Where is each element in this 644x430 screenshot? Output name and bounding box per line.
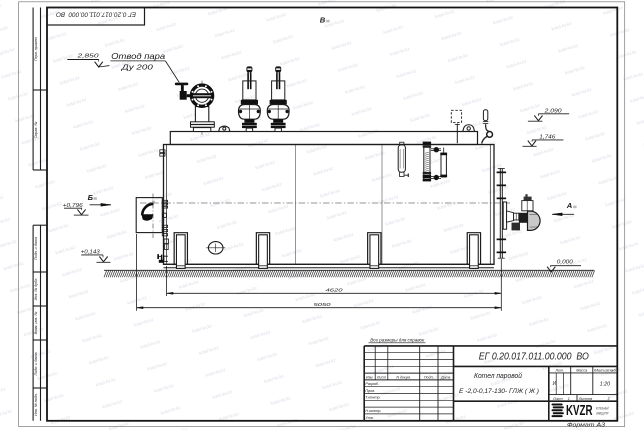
svg-text:КОТЕЛЬНЫЙ: КОТЕЛЬНЫЙ: [596, 406, 609, 410]
svg-text:Лит.: Лит.: [554, 369, 564, 373]
svg-text:Взам. инв. №: Взам. инв. №: [34, 312, 38, 335]
svg-text:В: В: [320, 16, 326, 25]
svg-text:Пров.: Пров.: [365, 389, 375, 393]
svg-text:Котел паровой: Котел паровой: [474, 371, 522, 380]
svg-text:ЗАВОД РЗР: ЗАВОД РЗР: [596, 411, 609, 415]
svg-text:Подп.: Подп.: [424, 375, 434, 379]
svg-text:ЕГ 0.20.017.011.00.000 ВО: ЕГ 0.20.017.011.00.000 ВО: [56, 11, 136, 18]
svg-text:Изм.: Изм.: [366, 375, 374, 379]
svg-text:Формат А3: Формат А3: [567, 422, 605, 428]
svg-text:ЕГ 0.20.017.011.00.000 ВО: ЕГ 0.20.017.011.00.000 ВО: [479, 351, 589, 362]
svg-text:1:20: 1:20: [600, 381, 611, 387]
svg-text:Листов: Листов: [578, 397, 593, 401]
svg-text:+0,143: +0,143: [81, 249, 100, 255]
svg-text:0,000: 0,000: [557, 259, 573, 265]
svg-text:N докум.: N докум.: [396, 375, 411, 379]
svg-text:KVZR: KVZR: [566, 403, 593, 419]
svg-text:Справ. №: Справ. №: [34, 122, 38, 139]
svg-text:5050: 5050: [314, 302, 331, 308]
svg-text:Перв. примен.: Перв. примен.: [34, 36, 38, 61]
svg-text:Инв. № дубл.: Инв. № дубл.: [34, 278, 38, 301]
svg-text:Лист: Лист: [376, 375, 386, 379]
svg-text:Инв. № подл.: Инв. № подл.: [34, 393, 38, 416]
svg-text:А: А: [566, 201, 572, 210]
svg-text:Дата: Дата: [440, 375, 450, 379]
svg-text:Т.контр.: Т.контр.: [365, 396, 380, 400]
svg-text:Б: Б: [88, 193, 94, 202]
svg-text:Все размеры для справок: Все размеры для справок: [370, 337, 425, 343]
svg-text:Н.контр.: Н.контр.: [365, 409, 381, 413]
svg-text:1: 1: [568, 397, 570, 401]
svg-text:Подп. и дата: Подп. и дата: [34, 237, 38, 260]
svg-text:4620: 4620: [326, 288, 343, 294]
svg-text:Е -2,0-0,17-130- ГЛЖ ( Ж ): Е -2,0-0,17-130- ГЛЖ ( Ж ): [459, 388, 539, 395]
svg-text:Ду 200: Ду 200: [121, 63, 154, 72]
svg-text:Утв.: Утв.: [365, 416, 374, 420]
svg-text:Подп. и дата: Подп. и дата: [34, 352, 38, 375]
svg-text:2: 2: [607, 397, 610, 401]
svg-text:Лист: Лист: [552, 397, 563, 401]
svg-text:Масштаб: Масштаб: [594, 369, 617, 373]
svg-text:2,850: 2,850: [76, 54, 99, 60]
svg-text:Разраб.: Разраб.: [365, 382, 379, 386]
svg-text:Отвод пара: Отвод пара: [111, 52, 166, 61]
svg-text:И: И: [553, 381, 557, 387]
svg-text:Масса: Масса: [576, 369, 587, 373]
